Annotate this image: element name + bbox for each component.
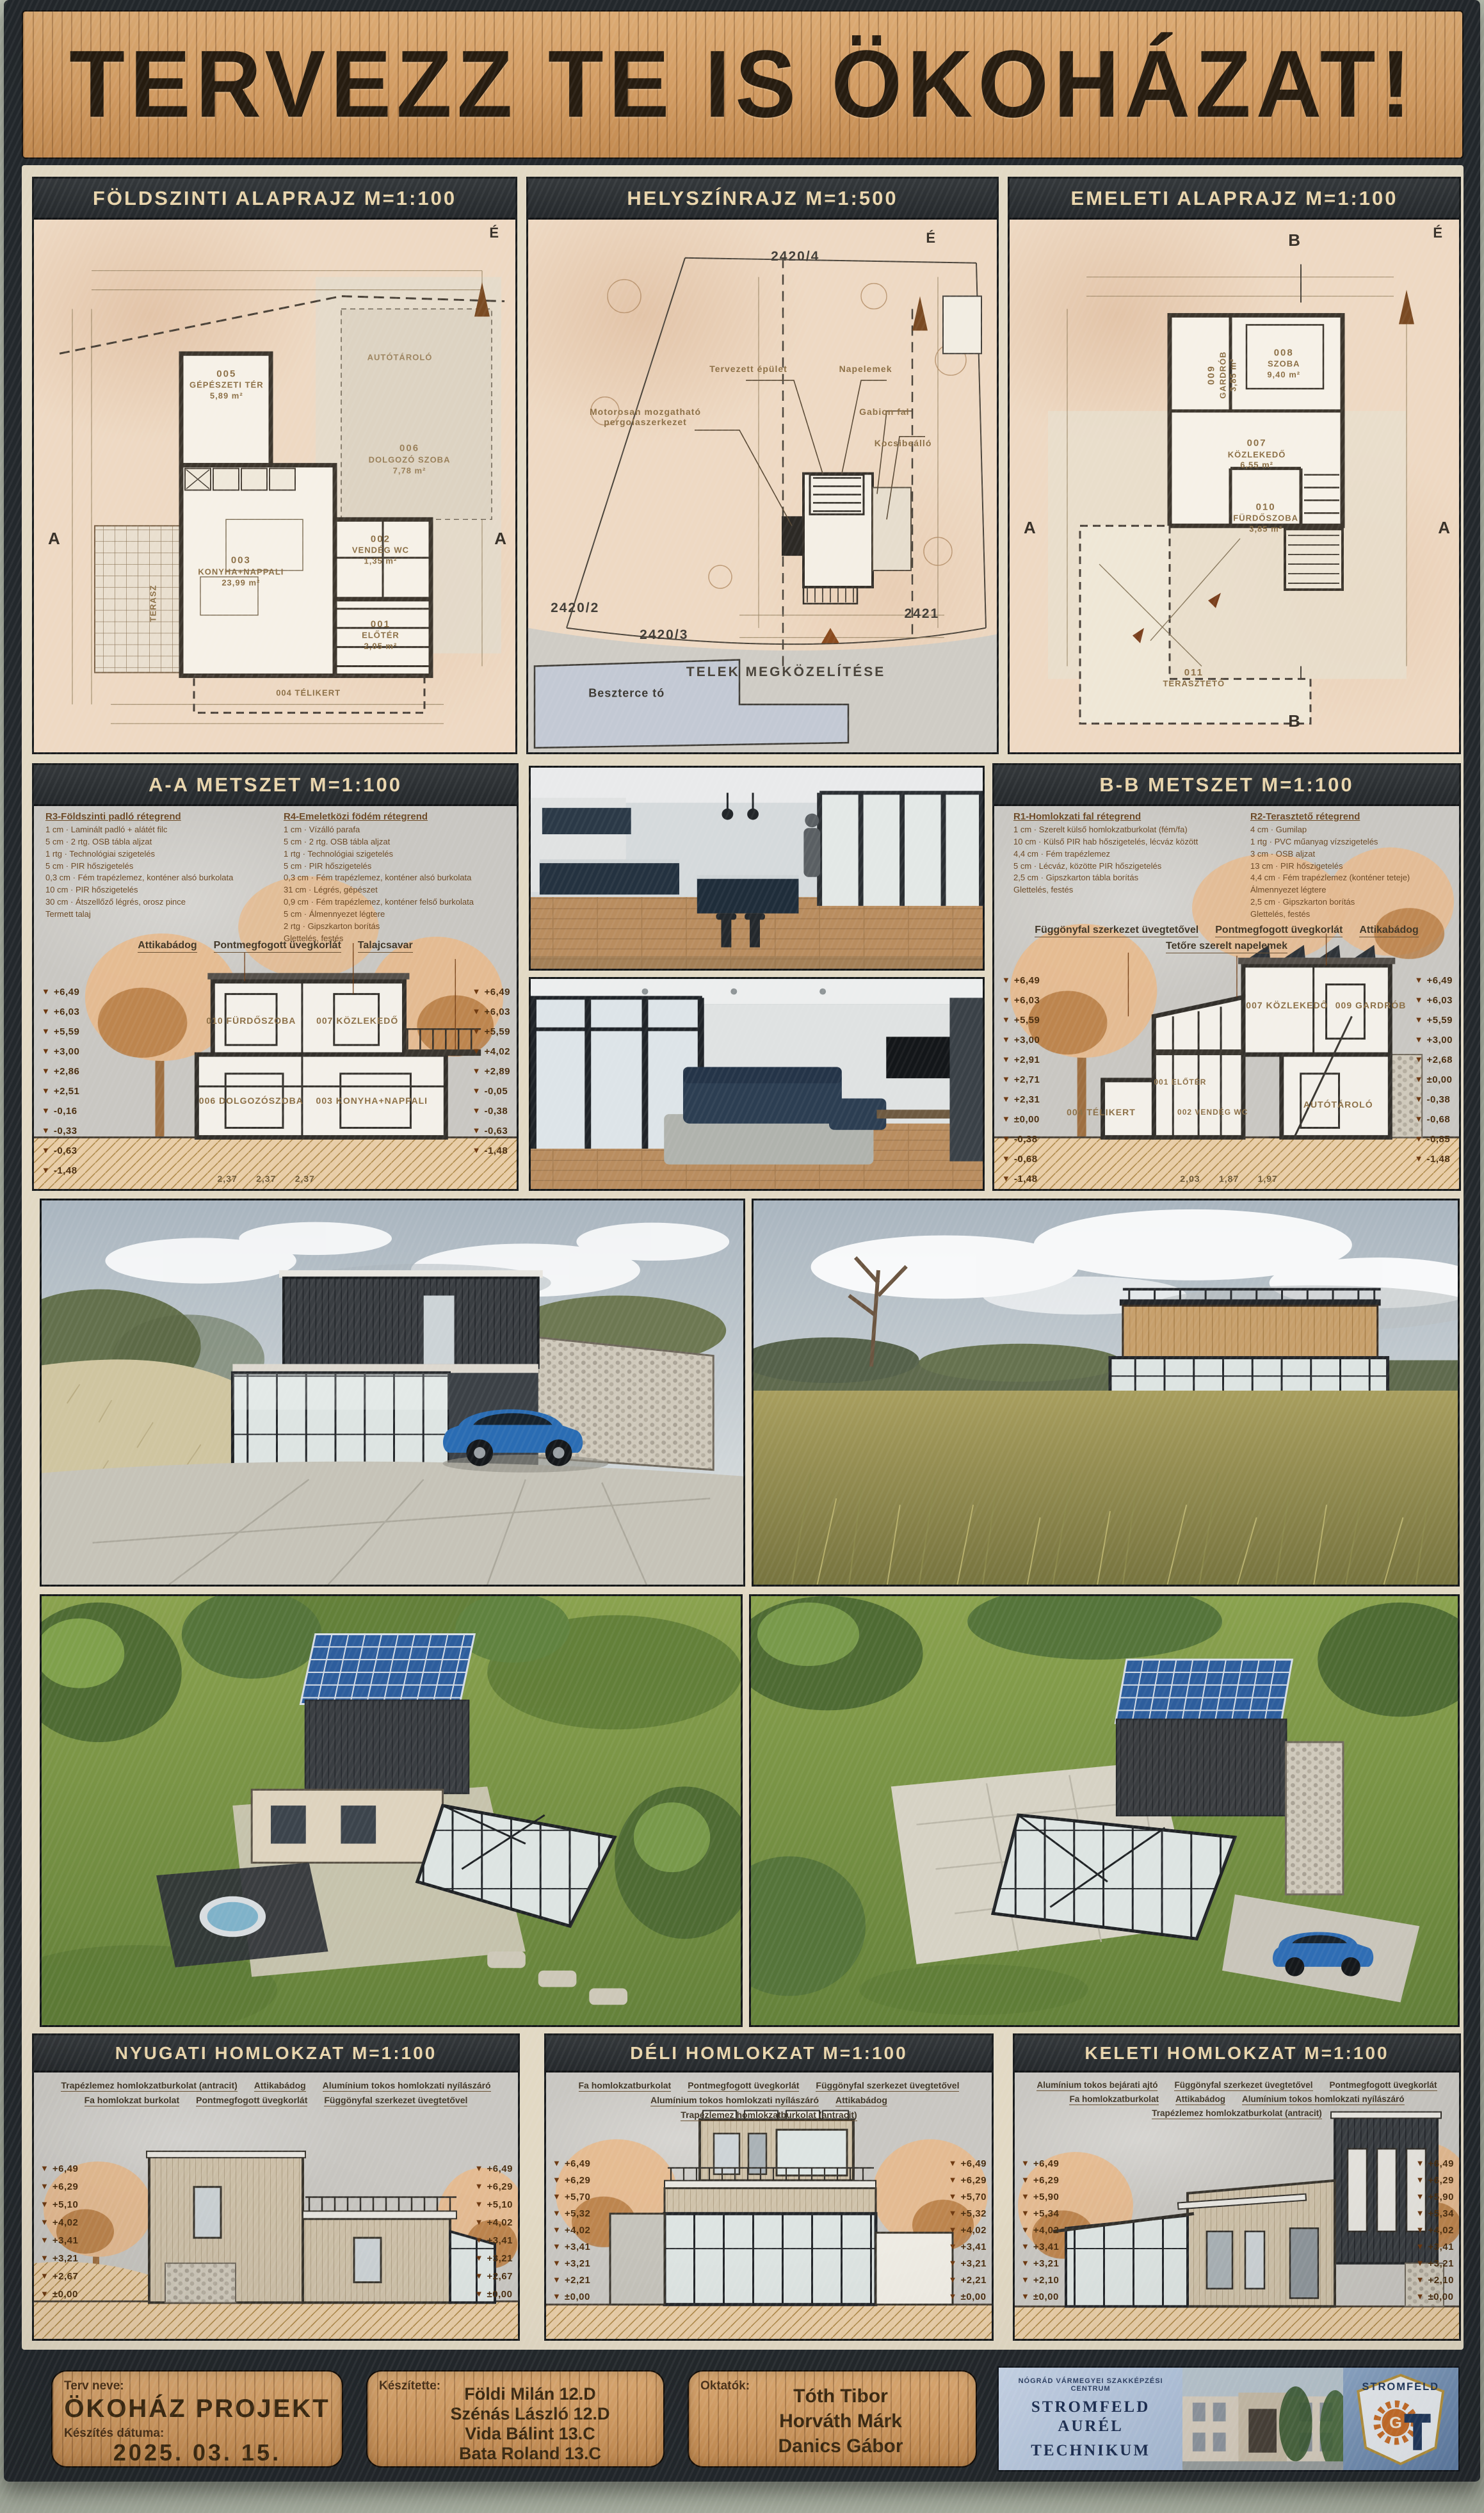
panel-elevation-south: DÉLI HOMLOKZAT M=1:100: [544, 2033, 994, 2341]
parcel-2420-4: 2420/4: [771, 249, 819, 264]
room-label: 008 SZOBA 9,40 m²: [1267, 346, 1300, 380]
level-marker-icon: [42, 1026, 50, 1037]
section-mark-a-right: A: [494, 529, 506, 549]
level-marker-icon: [552, 2158, 561, 2169]
level-marker-icon: [1415, 1034, 1423, 1046]
school-name-block: NÓGRÁD VÁRMEGYEI SZAKKÉPZÉSI CENTRUM STR…: [999, 2368, 1182, 2470]
project-name-label: Terv neve:: [64, 2379, 124, 2393]
teacher-name: Tóth Tibor: [714, 2386, 967, 2407]
level-marker-icon: [40, 2270, 49, 2282]
panel-title: KELETI HOMLOKZAT M=1:100: [1085, 2043, 1389, 2064]
level-marker-icon: [1002, 1173, 1010, 1184]
level-marker-icon: [949, 2291, 957, 2302]
level-marker-icon: [1002, 1113, 1010, 1125]
section-callouts: Függönyfal szerkezet üvegtetővelPontmegf…: [1013, 925, 1440, 953]
north-label: É: [1433, 225, 1442, 241]
section-dims: 2,37 2,37 2,37: [218, 1174, 315, 1184]
level-marker-icon: [42, 1165, 50, 1176]
section-mark-b-top: B: [1288, 230, 1300, 250]
elevation-west-drawing: Trapézlemez homlokzatburkolat (antracit)…: [34, 2073, 518, 2339]
level-marker-icon: [552, 2224, 561, 2236]
level-marker-icon: [42, 1125, 50, 1136]
panel-title: HELYSZÍNRAJZ M=1:500: [627, 187, 898, 210]
callout-carport: Kocsibeálló: [875, 438, 932, 448]
terrace-label: TERASZ: [148, 585, 159, 622]
north-arrow: É: [926, 230, 935, 246]
level-marker-icon: [1021, 2274, 1029, 2286]
level-marker-icon: [42, 1145, 50, 1156]
level-marker-icon: [1415, 1113, 1423, 1125]
level-marker-icon: [472, 1145, 481, 1156]
level-marker-icon: [1415, 974, 1423, 986]
panel-elevation-east: KELETI HOMLOKZAT M=1:100: [1013, 2033, 1461, 2341]
room-label: AUTÓTÁROLÓ: [367, 353, 433, 364]
school-name-2: TECHNIKUM: [1031, 2441, 1150, 2460]
parcel-2421: 2421: [905, 606, 940, 622]
levels-right: +6,49+6,29+5,90+5,34+4,02+3,41+3,21+2,10…: [1416, 2158, 1454, 2302]
school-centrum: NÓGRÁD VÁRMEGYEI SZAKKÉPZÉSI CENTRUM: [1004, 2377, 1177, 2393]
elevation-east-drawing: Alumínium tokos bejárati ajtóFüggönyfal …: [1015, 2073, 1459, 2339]
level-marker-icon: [552, 2258, 561, 2269]
level-marker-icon: [40, 2181, 49, 2192]
level-marker-icon: [42, 1006, 50, 1017]
panel-title: NYUGATI HOMLOKZAT M=1:100: [115, 2043, 437, 2064]
level-marker-icon: [1002, 1014, 1010, 1026]
authors-list: Földi Milán 12.DSzénás László 12.DVida B…: [406, 2384, 654, 2459]
panel-title: A-A METSZET M=1:100: [149, 773, 402, 796]
render-exterior-meadow: [752, 1199, 1460, 1587]
section-mark-a-left: A: [1024, 518, 1036, 538]
level-marker-icon: [472, 1006, 481, 1017]
levels-right: +6,49+6,29+5,10+4,02+3,41+3,21+2,67±0,00: [475, 2163, 513, 2300]
level-marker-icon: [472, 1065, 481, 1077]
parcel-2420-2: 2420/2: [551, 601, 599, 616]
ground-plan-svg: [34, 220, 515, 752]
level-marker-icon: [949, 2224, 957, 2236]
level-marker-icon: [949, 2158, 957, 2169]
level-marker-icon: [1002, 1054, 1010, 1065]
level-marker-icon: [1416, 2274, 1424, 2286]
level-marker-icon: [1415, 1153, 1423, 1165]
room-label: 009 GARDRÓB: [1335, 1000, 1407, 1010]
level-marker-icon: [1021, 2224, 1029, 2236]
room-label: 005 GÉPÉSZETI TÉR 5,89 m²: [190, 368, 264, 401]
panel-title: DÉLI HOMLOKZAT M=1:100: [630, 2043, 907, 2064]
room-label: 011 TERASZTETŐ: [1163, 666, 1225, 689]
level-marker-icon: [475, 2288, 483, 2300]
levels-left: +6,49+6,03+5,59+3,00+2,86+2,51-0,16-0,33…: [42, 986, 79, 1176]
room-label: 002 VENDÉG WC: [1177, 1108, 1248, 1117]
panel-header: NYUGATI HOMLOKZAT M=1:100: [34, 2035, 518, 2073]
level-marker-icon: [40, 2217, 49, 2228]
level-marker-icon: [1002, 1133, 1010, 1145]
level-marker-icon: [1021, 2208, 1029, 2219]
school-building-svg: [1182, 2368, 1343, 2470]
room-label: 007 KÖZLEKEDŐ 6,55 m²: [1228, 437, 1286, 471]
poster-board: TERVEZZ TE IS ÖKOHÁZAT! FÖLDSZINTI ALAPR…: [4, 0, 1480, 2482]
site-plan-drawing: É 2420/4 2420/2 2420/3 2421 Tervezett ép…: [528, 220, 997, 752]
level-marker-icon: [1415, 1133, 1423, 1145]
school-name-1: STROMFELD AURÉL: [1004, 2398, 1177, 2436]
level-marker-icon: [552, 2274, 561, 2286]
callout-planned-building: Tervezett épület: [709, 364, 787, 374]
level-marker-icon: [1021, 2191, 1029, 2202]
aerial-terrace-svg: [751, 1596, 1458, 2025]
level-marker-icon: [949, 2208, 957, 2219]
room-label: 003 KONYHA+NAPPALI 23,99 m²: [198, 554, 284, 588]
level-marker-icon: [949, 2241, 957, 2252]
room-label: 007 KÖZLEKEDŐ: [316, 1015, 398, 1026]
level-marker-icon: [1021, 2158, 1029, 2169]
upper-plan-svg: [1010, 220, 1459, 752]
room-label: 009 GARDRÓB 3,85 m²: [1205, 351, 1239, 399]
ground-plan-drawing: É A A 005 GÉPÉSZETI TÉR 5,89 m² AUTÓTÁRO…: [34, 220, 515, 752]
school-building-photo: [1182, 2368, 1343, 2470]
panel-header: B-B METSZET M=1:100: [994, 765, 1459, 806]
level-marker-icon: [42, 1065, 50, 1077]
svg-text:G: G: [1390, 2414, 1403, 2432]
render-aerial-garden: [40, 1594, 743, 2027]
school-logo: G STROMFELD: [1343, 2368, 1458, 2470]
interior-living-svg: [531, 979, 983, 1189]
level-marker-icon: [475, 2270, 483, 2282]
school-banner: NÓGRÁD VÁRMEGYEI SZAKKÉPZÉSI CENTRUM STR…: [997, 2366, 1460, 2471]
legend-r2: R2-Terasztető rétegrend 4 cm · Gumilap1 …: [1250, 811, 1410, 921]
panel-header: HELYSZÍNRAJZ M=1:500: [528, 179, 997, 220]
panel-site-plan: HELYSZÍNRAJZ M=1:500: [526, 177, 999, 754]
photo-of-poster: TERVEZZ TE IS ÖKOHÁZAT! FÖLDSZINTI ALAPR…: [0, 0, 1484, 2513]
level-marker-icon: [40, 2199, 49, 2210]
level-marker-icon: [1002, 974, 1010, 986]
levels-left: +6,49+6,03+5,59+3,00+2,91+2,71+2,31±0,00…: [1002, 974, 1040, 1184]
legend-r4: R4-Emeletközi födém rétegrend 1 cm · Víz…: [284, 811, 474, 944]
author-name: Szénás László 12.D: [406, 2404, 654, 2424]
level-marker-icon: [1415, 1054, 1423, 1065]
exterior-meadow-svg: [754, 1200, 1458, 1585]
level-marker-icon: [1002, 1153, 1010, 1165]
level-marker-icon: [1021, 2174, 1029, 2186]
room-label: 010 FÜRDŐSZOBA: [206, 1015, 296, 1026]
level-marker-icon: [1002, 994, 1010, 1006]
date-label: Készítés dátuma:: [64, 2427, 164, 2441]
level-marker-icon: [949, 2258, 957, 2269]
level-marker-icon: [1416, 2158, 1424, 2169]
panel-section-bb: B-B METSZET M=1:100: [992, 763, 1461, 1191]
level-marker-icon: [1415, 1014, 1423, 1026]
level-marker-icon: [1416, 2174, 1424, 2186]
north-arrow: É: [1433, 225, 1442, 241]
room-label: 001 ELŐTÉR: [1154, 1078, 1206, 1087]
panel-upper-floor-plan: EMELETI ALAPRAJZ M=1:100: [1008, 177, 1461, 754]
level-marker-icon: [1415, 1094, 1423, 1105]
level-marker-icon: [1002, 1034, 1010, 1046]
level-marker-icon: [472, 1046, 481, 1057]
poster-title: TERVEZZ TE IS ÖKOHÁZAT!: [69, 29, 1416, 140]
level-marker-icon: [1416, 2191, 1424, 2202]
render-exterior-front: [40, 1199, 745, 1587]
footer-project-card: Terv neve: ÖKOHÁZ PROJEKT Készítés dátum…: [51, 2370, 343, 2468]
upper-plan-drawing: É B B A A 009 GARDRÓB 3,85 m² 008 SZOBA …: [1010, 220, 1459, 752]
panel-header: EMELETI ALAPRAJZ M=1:100: [1010, 179, 1459, 220]
author-name: Földi Milán 12.D: [406, 2384, 654, 2404]
svg-text:STROMFELD: STROMFELD: [1362, 2380, 1440, 2393]
levels-right: +6,49+6,29+5,70+5,32+4,02+3,41+3,21+2,21…: [949, 2158, 987, 2302]
north-arrow: É: [489, 225, 499, 241]
room-label: 010 FÜRDŐSZOBA 3,85 m²: [1233, 501, 1298, 535]
room-label: 004 TÉLIKERT: [1067, 1107, 1136, 1117]
footer-authors-card: Készítette: Földi Milán 12.DSzénás Lászl…: [366, 2370, 665, 2468]
level-marker-icon: [42, 1105, 50, 1117]
lake-label: Beszterce tó: [588, 687, 665, 700]
level-marker-icon: [472, 1105, 481, 1117]
level-marker-icon: [1416, 2208, 1424, 2219]
title-banner: TERVEZZ TE IS ÖKOHÁZAT!: [22, 10, 1464, 159]
teachers-list: Tóth TiborHorváth MárkDanics Gábor: [714, 2384, 967, 2459]
level-marker-icon: [1021, 2258, 1029, 2269]
room-label: 006 DOLGOZÓSZOBA: [199, 1095, 303, 1106]
author-name: Bata Roland 13.C: [406, 2444, 654, 2464]
level-marker-icon: [552, 2191, 561, 2202]
panel-header: DÉLI HOMLOKZAT M=1:100: [546, 2035, 992, 2073]
callout-gabion-wall: Gabion fal: [859, 407, 909, 417]
elevation-callouts: Trapézlemez homlokzatburkolat (antracit)…: [53, 2080, 499, 2106]
levels-left: +6,49+6,29+5,70+5,32+4,02+3,41+3,21+2,21…: [552, 2158, 590, 2302]
interior-kitchen-svg: [531, 768, 983, 969]
level-marker-icon: [1021, 2291, 1029, 2302]
parcel-2420-3: 2420/3: [640, 627, 688, 643]
level-marker-icon: [472, 986, 481, 998]
section-mark-a-right: A: [1438, 518, 1450, 538]
room-label: 001 ELŐTÉR 2,05 m²: [362, 618, 399, 652]
project-date: 2025. 03. 15.: [52, 2439, 342, 2466]
level-marker-icon: [1416, 2291, 1424, 2302]
winter-garden-label: 004 TÉLIKERT: [276, 688, 341, 699]
level-marker-icon: [42, 986, 50, 998]
level-marker-icon: [1416, 2258, 1424, 2269]
level-marker-icon: [475, 2199, 483, 2210]
north-label: É: [926, 230, 935, 246]
section-dims: 2,03 1,87 1,97: [1180, 1174, 1277, 1184]
level-marker-icon: [1415, 1074, 1423, 1085]
render-aerial-terrace: [749, 1594, 1460, 2027]
level-marker-icon: [552, 2208, 561, 2219]
panel-title: EMELETI ALAPRAJZ M=1:100: [1071, 187, 1398, 210]
solar-array: [300, 1634, 474, 1704]
panel-title: B-B METSZET M=1:100: [1099, 773, 1353, 796]
level-marker-icon: [42, 1085, 50, 1097]
render-interior-living: [529, 977, 985, 1191]
level-marker-icon: [40, 2234, 49, 2246]
section-mark-b-bottom: B: [1288, 711, 1300, 731]
level-marker-icon: [472, 1026, 481, 1037]
callout-solar-panels: Napelemek: [839, 364, 892, 374]
north-label: É: [489, 225, 499, 241]
level-marker-icon: [472, 1125, 481, 1136]
room-label: 003 KONYHA+NAPPALI: [316, 1095, 428, 1106]
level-marker-icon: [1416, 2241, 1424, 2252]
level-marker-icon: [1416, 2224, 1424, 2236]
level-marker-icon: [475, 2163, 483, 2174]
level-marker-icon: [40, 2288, 49, 2300]
level-marker-icon: [949, 2174, 957, 2186]
teacher-name: Horváth Márk: [714, 2411, 967, 2432]
elevation-west-svg: [34, 2073, 518, 2339]
author-name: Vida Bálint 13.C: [406, 2424, 654, 2444]
callout-pergola: Motorosan mozgatható pergolaszerkezet: [569, 407, 722, 427]
exterior-front-svg: [42, 1200, 743, 1585]
level-marker-icon: [1415, 994, 1423, 1006]
panel-header: A-A METSZET M=1:100: [34, 765, 517, 806]
panel-elevation-west: NYUGATI HOMLOKZAT M=1:100: [32, 2033, 520, 2341]
level-marker-icon: [1021, 2241, 1029, 2252]
elevation-callouts: Alumínium tokos bejárati ajtóFüggönyfal …: [1028, 2080, 1446, 2119]
levels-left: +6,49+6,29+5,90+5,34+4,02+3,41+3,21+2,10…: [1021, 2158, 1059, 2302]
footer-teachers-card: Oktatók: Tóth TiborHorváth MárkDanics Gá…: [688, 2370, 977, 2468]
panel-header: FÖLDSZINTI ALAPRAJZ M=1:100: [34, 179, 515, 220]
level-marker-icon: [949, 2274, 957, 2286]
levels-left: +6,49+6,29+5,10+4,02+3,41+3,21+2,67±0,00: [40, 2163, 78, 2300]
render-interior-kitchen: [529, 766, 985, 971]
level-marker-icon: [475, 2217, 483, 2228]
level-marker-icon: [40, 2252, 49, 2264]
teacher-name: Danics Gábor: [714, 2436, 967, 2457]
panel-header: KELETI HOMLOKZAT M=1:100: [1015, 2035, 1459, 2073]
levels-right: +6,49+6,03+5,59+3,00+2,68±0,00-0,38-0,68…: [1415, 974, 1453, 1165]
site-access-label: TELEK MEGKÖZELÍTÉSE: [686, 665, 885, 680]
level-marker-icon: [475, 2234, 483, 2246]
project-name: ÖKOHÁZ PROJEKT: [52, 2395, 342, 2423]
section-callouts: AttikabádogPontmegfogott üvegkorlátTalaj…: [72, 940, 478, 953]
level-marker-icon: [1002, 1074, 1010, 1085]
section-mark-a-left: A: [48, 529, 60, 549]
section-bb-drawing: R1-Homlokzati fal rétegrend 1 cm · Szere…: [994, 806, 1459, 1189]
room-label: AUTÓTÁROLÓ: [1303, 1099, 1373, 1110]
level-marker-icon: [552, 2174, 561, 2186]
room-label: 002 VENDÉG WC 1,35 m²: [352, 533, 409, 567]
solar-array: [1115, 1660, 1292, 1723]
room-label: 007 KÖZLEKEDŐ: [1246, 1000, 1328, 1010]
section-aa-drawing: R3-Földszinti padló rétegrend 1 cm · Lam…: [34, 806, 517, 1189]
level-marker-icon: [472, 1085, 481, 1097]
elevation-south-drawing: Fa homlokzatburkolatPontmegfogott üvegko…: [546, 2073, 992, 2339]
levels-right: +6,49+6,03+5,59+4,02+2,89-0,05-0,38-0,63…: [472, 986, 510, 1156]
level-marker-icon: [475, 2181, 483, 2192]
level-marker-icon: [40, 2163, 49, 2174]
elevation-callouts: Fa homlokzatburkolatPontmegfogott üvegko…: [564, 2080, 974, 2121]
level-marker-icon: [1002, 1094, 1010, 1105]
school-logo-svg: G STROMFELD: [1343, 2368, 1458, 2470]
panel-title: FÖLDSZINTI ALAPRAJZ M=1:100: [93, 187, 456, 210]
level-marker-icon: [475, 2252, 483, 2264]
level-marker-icon: [949, 2191, 957, 2202]
room-label: 006 DOLGOZÓ SZOBA 7,78 m²: [369, 442, 451, 476]
aerial-garden-svg: [42, 1596, 741, 2025]
panel-ground-floor-plan: FÖLDSZINTI ALAPRAJZ M=1:100: [32, 177, 517, 754]
level-marker-icon: [42, 1046, 50, 1057]
legend-r1: R1-Homlokzati fal rétegrend 1 cm · Szere…: [1013, 811, 1198, 896]
level-marker-icon: [552, 2241, 561, 2252]
legend-r3: R3-Földszinti padló rétegrend 1 cm · Lam…: [45, 811, 233, 921]
level-marker-icon: [552, 2291, 561, 2302]
panel-section-aa: A-A METSZET M=1:100: [32, 763, 519, 1191]
